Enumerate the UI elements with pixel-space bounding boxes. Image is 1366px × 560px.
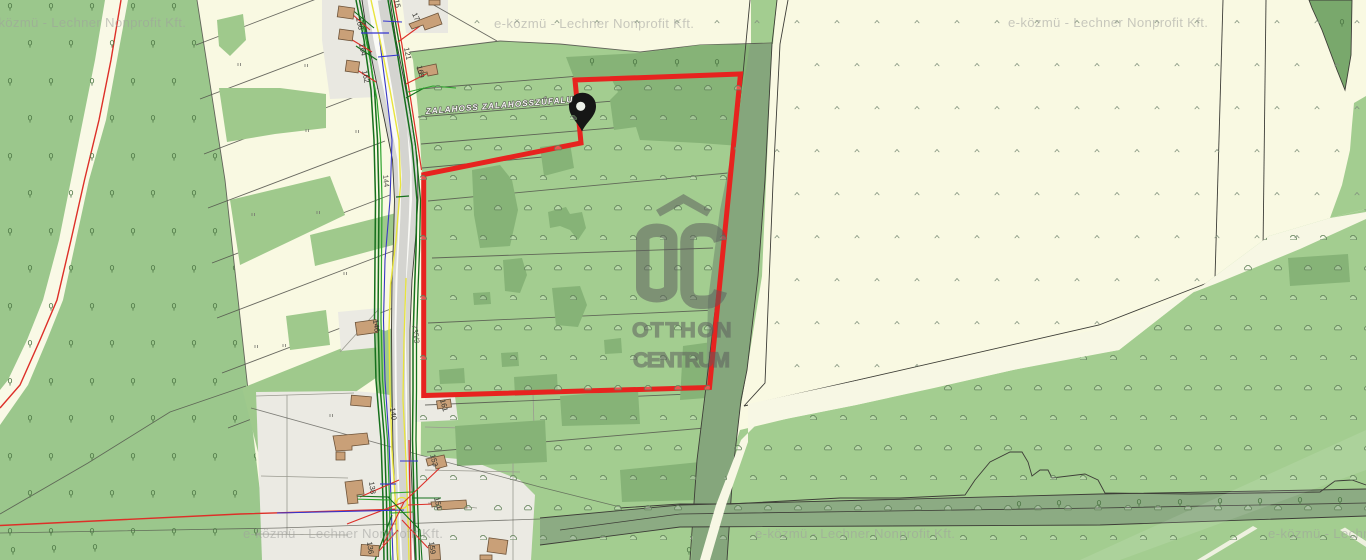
svg-text:CENTRUM: CENTRUM — [633, 348, 730, 372]
svg-text:e-közmü - Lechner Nonprofit Kf: e-közmü - Lechner Nonprofit Kft. — [755, 526, 955, 541]
svg-text:136: 136 — [365, 541, 376, 555]
svg-text:OTTHON: OTTHON — [632, 318, 732, 342]
svg-text:e-közmü - Lechner Nonprofit Kf: e-közmü - Lechner Nonprofit Kft. — [243, 526, 443, 541]
svg-text:138: 138 — [367, 481, 378, 495]
svg-text:e-közmü - Lechner Nonprofit Kf: e-közmü - Lechner Nonprofit Kft. — [1268, 526, 1366, 541]
svg-text:159: 159 — [427, 541, 438, 555]
svg-text:e-közmü - Lechner Nonprofit Kf: e-közmü - Lechner Nonprofit Kft. — [0, 15, 186, 30]
svg-text:144: 144 — [381, 174, 391, 187]
svg-text:146: 146 — [371, 319, 382, 333]
svg-text:140: 140 — [388, 407, 399, 421]
svg-text:e-közmü - Lechner Nonprofit Kf: e-közmü - Lechner Nonprofit Kft. — [1008, 15, 1208, 30]
svg-text:e-közmü - Lechner Nonprofit Kf: e-közmü - Lechner Nonprofit Kft. — [494, 16, 694, 31]
